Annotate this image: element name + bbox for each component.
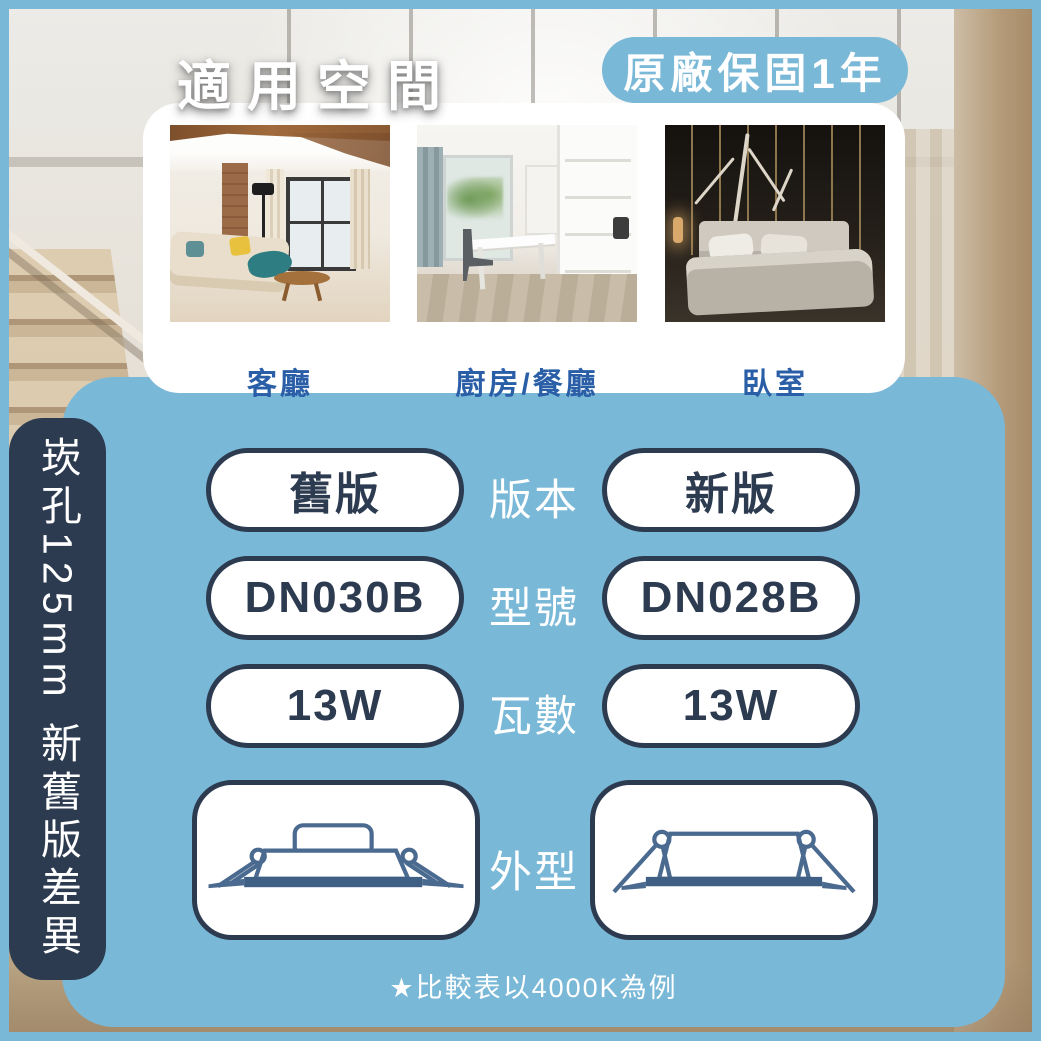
- row-label-model: 型號: [474, 574, 594, 636]
- footnote: ★比較表以4000K為例: [62, 966, 1005, 1005]
- row-label-wattage: 瓦數: [474, 682, 594, 744]
- warranty-badge: 原廠保固1年: [602, 37, 908, 103]
- kt-curtain: [417, 147, 443, 267]
- lr-curtain-right: [350, 169, 370, 269]
- old-shape-box: [192, 780, 480, 940]
- space-bedroom: 臥室: [665, 125, 885, 322]
- living-room-photo: [170, 125, 390, 322]
- old-version-shape-drawing: [197, 785, 475, 935]
- space-label-bedroom: 臥室: [665, 359, 885, 403]
- lr-pillow-teal: [186, 241, 204, 257]
- bd-lamp: [673, 217, 683, 243]
- lr-floor-lamp: [262, 191, 265, 239]
- old-wattage-pill: 13W: [206, 664, 464, 748]
- kt-trees: [447, 177, 503, 221]
- bd-branch-1: [732, 133, 749, 229]
- page-title: 適用空間: [177, 42, 457, 121]
- bd-branch-2: [694, 157, 735, 205]
- row-label-shape: 外型: [474, 838, 594, 900]
- kt-floor: [417, 274, 637, 322]
- bd-bed: [686, 248, 875, 316]
- kitchen-photo: [417, 125, 637, 322]
- spaces-card: 客廳 廚房/餐廳: [143, 103, 905, 393]
- new-model-pill: DN028B: [602, 556, 860, 640]
- lr-pillow-yellow: [229, 236, 251, 257]
- kt-appliance: [613, 217, 629, 239]
- kt-shelf: [525, 165, 559, 235]
- new-shape-box: [590, 780, 878, 940]
- lr-coffee-table: [274, 271, 330, 285]
- old-version-pill: 舊版: [206, 448, 464, 532]
- sidebar-tab: 崁孔125mm 新舊版差異: [9, 418, 106, 980]
- lr-window: [286, 177, 356, 271]
- sidebar-vertical-text: 崁孔125mm 新舊版差異: [28, 436, 88, 962]
- space-living-room: 客廳: [170, 125, 390, 322]
- row-label-version: 版本: [474, 466, 594, 528]
- new-version-shape-drawing: [595, 785, 873, 935]
- new-wattage-pill: 13W: [602, 664, 860, 748]
- bedroom-photo: [665, 125, 885, 322]
- new-version-pill: 新版: [602, 448, 860, 532]
- promo-page: 崁孔125mm 新舊版差異 客廳: [0, 0, 1041, 1041]
- space-label-kitchen-dining: 廚房/餐廳: [417, 359, 637, 403]
- space-kitchen-dining: 廚房/餐廳: [417, 125, 637, 322]
- old-model-pill: DN030B: [206, 556, 464, 640]
- space-label-living-room: 客廳: [170, 359, 390, 403]
